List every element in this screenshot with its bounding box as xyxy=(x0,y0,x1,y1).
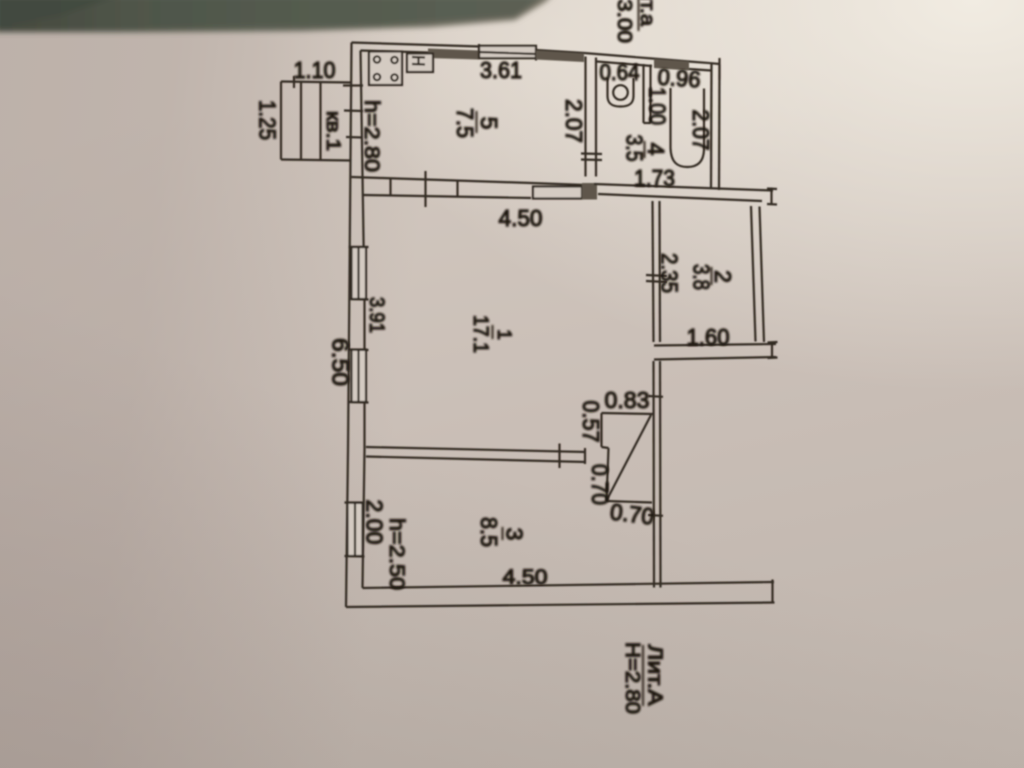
svg-text:0.96: 0.96 xyxy=(657,64,702,93)
svg-text:2.07: 2.07 xyxy=(688,110,714,151)
svg-text:3.00: 3.00 xyxy=(613,0,635,43)
svg-text:1: 1 xyxy=(493,329,514,340)
svg-text:h=2.80: h=2.80 xyxy=(360,100,383,172)
svg-text:3: 3 xyxy=(502,528,528,541)
svg-text:h=2.50: h=2.50 xyxy=(385,518,408,590)
svg-text:2.35: 2.35 xyxy=(657,253,683,293)
svg-text:2.07: 2.07 xyxy=(561,99,587,143)
svg-text:3.91: 3.91 xyxy=(365,297,388,333)
svg-text:1.25: 1.25 xyxy=(255,100,281,140)
svg-text:кв.1: кв.1 xyxy=(322,111,343,151)
svg-text:1.00: 1.00 xyxy=(645,87,671,125)
svg-text:0.57: 0.57 xyxy=(578,401,604,443)
svg-text:2: 2 xyxy=(710,270,736,283)
svg-text:1.10: 1.10 xyxy=(294,57,336,83)
svg-text:4: 4 xyxy=(643,143,669,156)
svg-text:7.5: 7.5 xyxy=(452,108,478,138)
svg-text:4.50: 4.50 xyxy=(499,205,543,231)
svg-text:8.5: 8.5 xyxy=(476,517,502,547)
svg-text:3.61: 3.61 xyxy=(480,57,522,83)
svg-text:17.1: 17.1 xyxy=(469,315,492,353)
svg-text:1.73: 1.73 xyxy=(634,165,675,191)
svg-text:Лит.А: Лит.А xyxy=(644,645,666,707)
svg-text:0.70: 0.70 xyxy=(587,464,613,505)
svg-text:4.50: 4.50 xyxy=(503,566,548,589)
svg-text:6.50: 6.50 xyxy=(328,338,354,386)
svg-text:1.60: 1.60 xyxy=(687,324,730,350)
svg-text:0.64: 0.64 xyxy=(600,59,640,85)
svg-text:0.70: 0.70 xyxy=(609,498,656,529)
svg-text:0.83: 0.83 xyxy=(605,387,650,413)
svg-text:2.00: 2.00 xyxy=(362,500,388,545)
svg-text:5: 5 xyxy=(476,117,502,130)
svg-text:Н=2.80: Н=2.80 xyxy=(621,642,643,714)
